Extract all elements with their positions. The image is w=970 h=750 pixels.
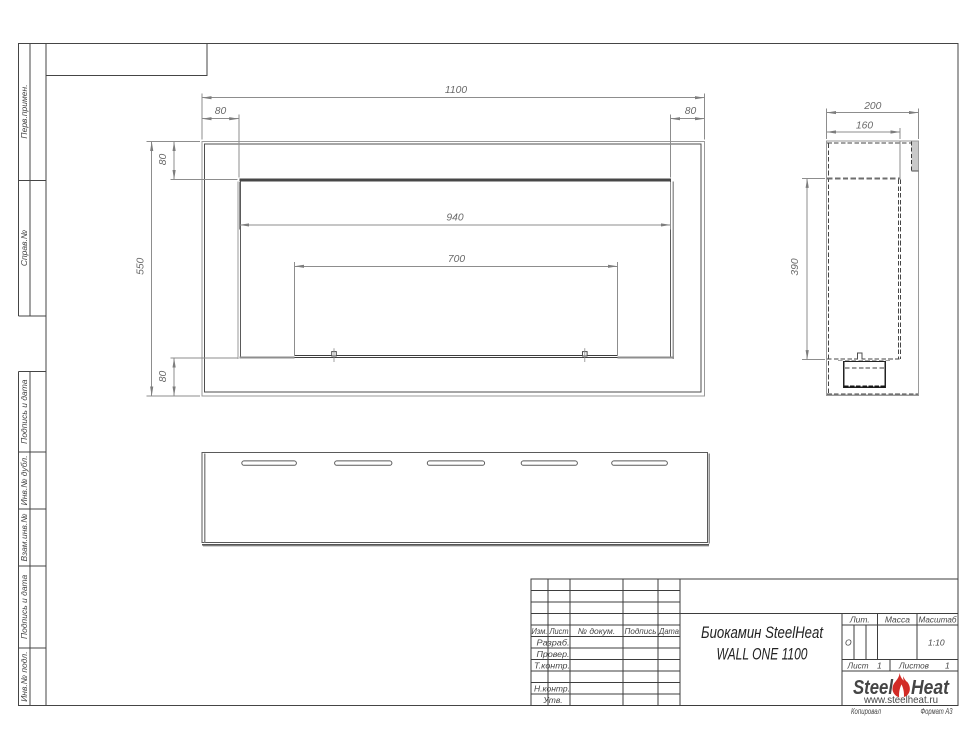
svg-text:Лист: Лист	[549, 626, 569, 636]
svg-text:Формат А3: Формат А3	[921, 706, 953, 716]
svg-text:Справ.№: Справ.№	[19, 230, 29, 266]
svg-text:Подпись: Подпись	[625, 626, 657, 636]
svg-text:№ докум.: № докум.	[578, 626, 615, 636]
svg-text:Т.контр.: Т.контр.	[534, 660, 570, 670]
svg-text:Изм.: Изм.	[532, 626, 548, 636]
svg-text:550: 550	[136, 257, 147, 274]
svg-text:Лит.: Лит.	[849, 614, 870, 624]
svg-text:Лист: Лист	[847, 661, 869, 671]
svg-text:О: О	[845, 638, 852, 648]
svg-text:390: 390	[790, 258, 801, 275]
svg-text:Инв.№ дубл.: Инв.№ дубл.	[19, 455, 29, 505]
svg-text:80: 80	[685, 106, 697, 117]
svg-text:940: 940	[446, 212, 463, 223]
svg-text:80: 80	[158, 154, 169, 166]
svg-text:1: 1	[945, 661, 950, 671]
svg-text:80: 80	[215, 106, 227, 117]
svg-text:Утв.: Утв.	[542, 695, 562, 705]
svg-text:160: 160	[856, 121, 873, 132]
svg-text:Дата: Дата	[658, 626, 679, 636]
svg-text:Провер.: Провер.	[537, 649, 570, 659]
svg-text:700: 700	[448, 254, 465, 265]
svg-text:www.steelheat.ru: www.steelheat.ru	[863, 694, 938, 706]
svg-text:Инв.№ подл.: Инв.№ подл.	[19, 651, 29, 701]
svg-text:Масштаб: Масштаб	[919, 614, 958, 624]
svg-text:Перв.примен.: Перв.примен.	[19, 84, 29, 138]
svg-text:Н.контр.: Н.контр.	[534, 683, 570, 693]
svg-text:Подпись и дата: Подпись и дата	[19, 379, 29, 444]
svg-text:Копировал: Копировал	[851, 706, 881, 716]
svg-text:Листов: Листов	[898, 661, 929, 671]
svg-text:Подпись и дата: Подпись и дата	[19, 574, 29, 639]
svg-text:1100: 1100	[445, 85, 467, 96]
svg-text:1:10: 1:10	[928, 638, 945, 648]
svg-text:Взам.инв.№: Взам.инв.№	[19, 514, 29, 562]
svg-text:Биокамин SteelHeat: Биокамин SteelHeat	[701, 624, 824, 642]
svg-text:80: 80	[158, 371, 169, 383]
svg-text:1: 1	[877, 661, 882, 671]
svg-text:Разраб.: Разраб.	[537, 637, 570, 647]
svg-text:200: 200	[863, 101, 881, 112]
svg-text:WALL ONE 1100: WALL ONE 1100	[717, 645, 808, 664]
svg-text:Масса: Масса	[885, 614, 910, 624]
